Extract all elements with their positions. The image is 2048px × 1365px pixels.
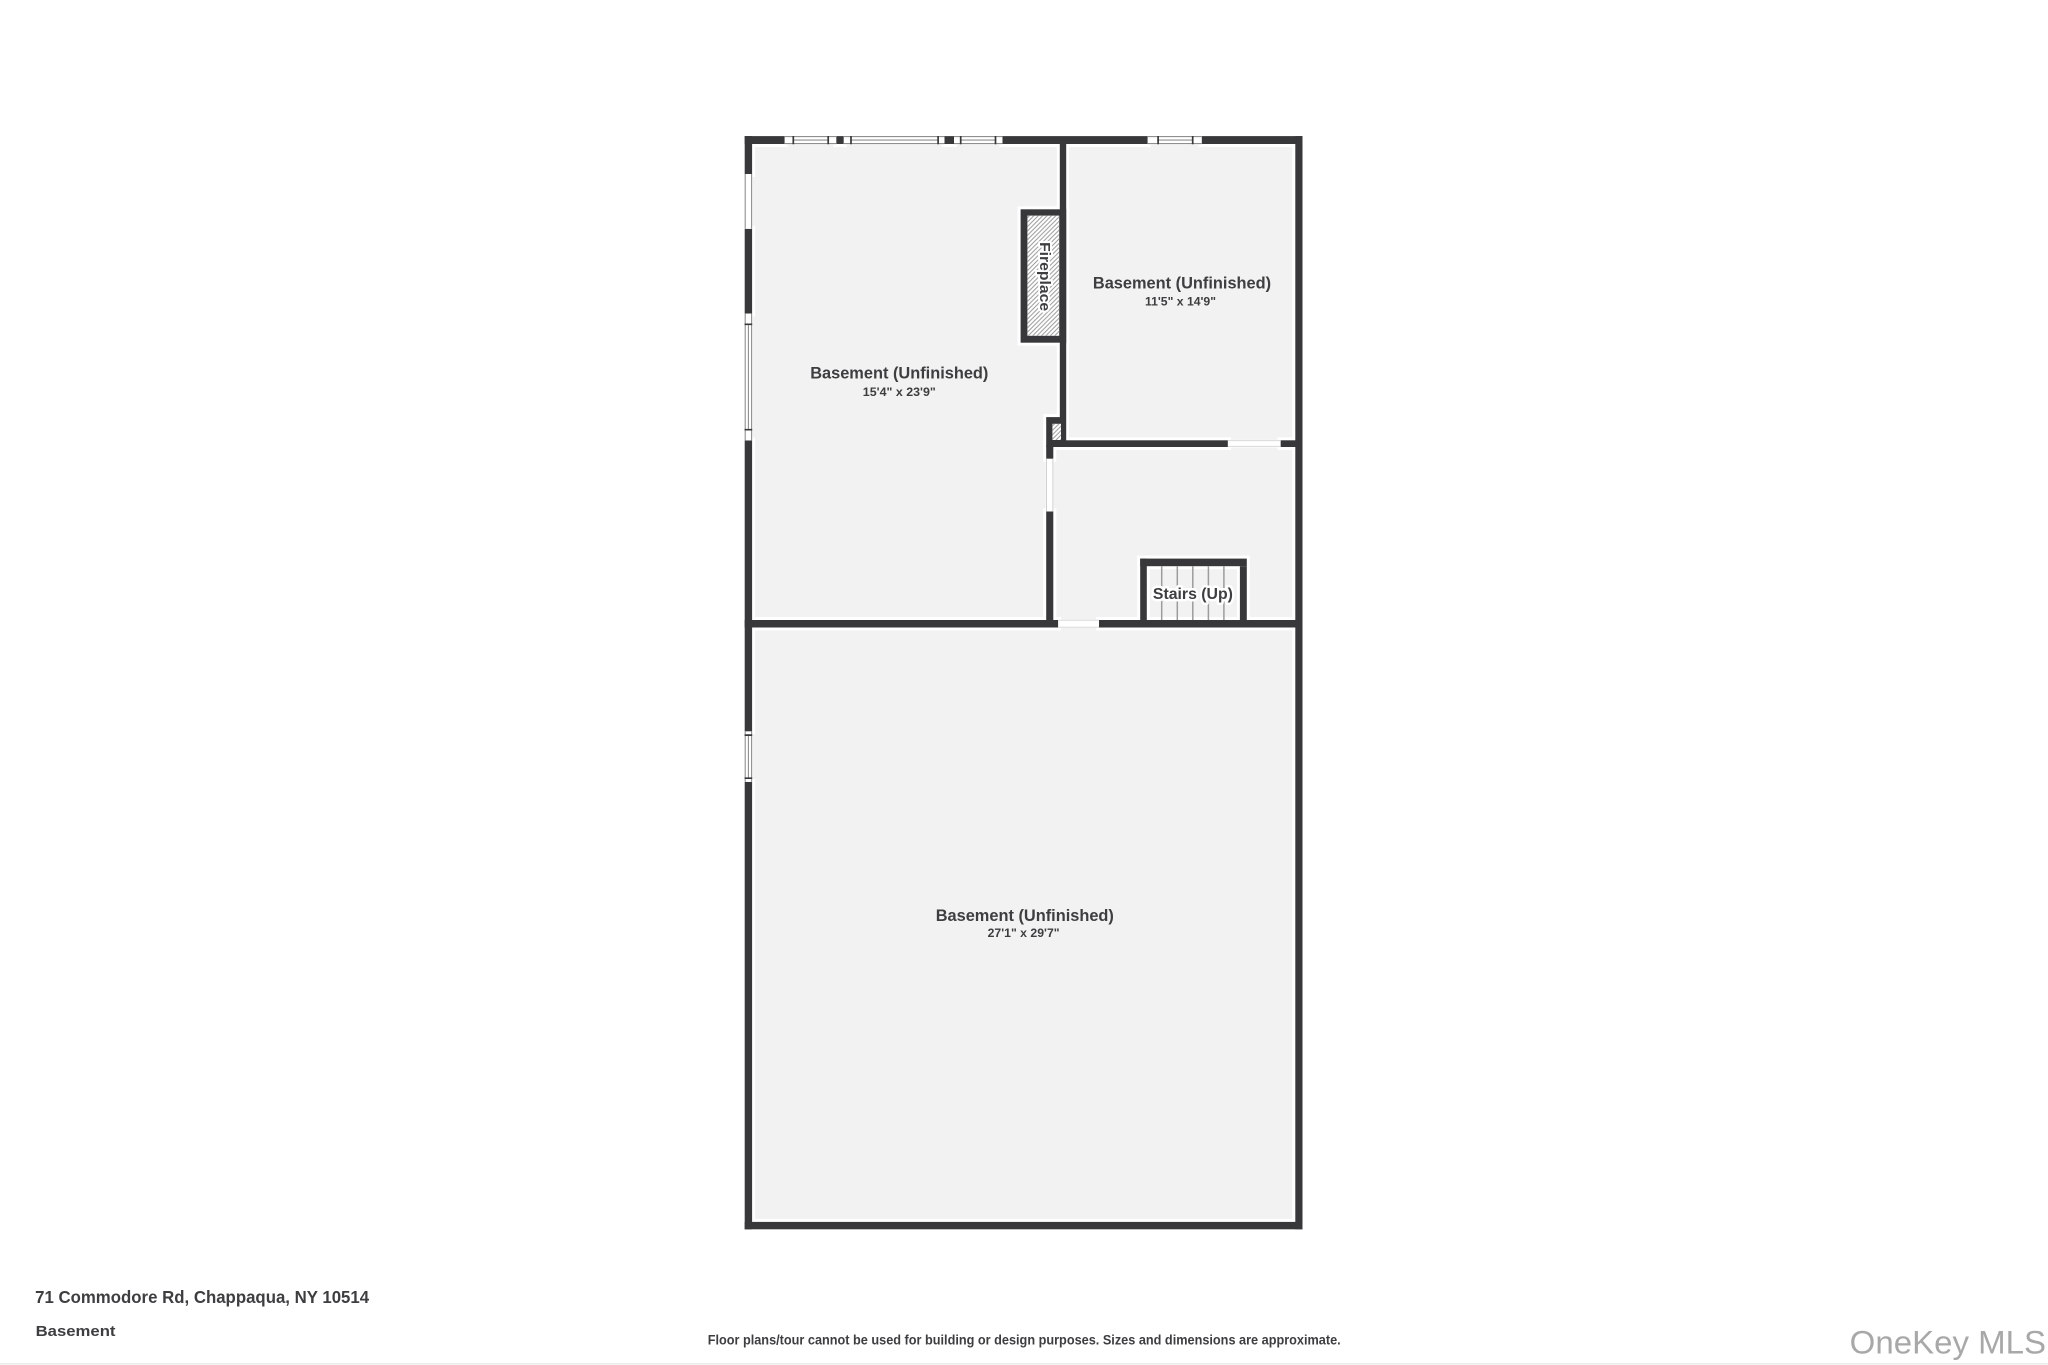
svg-text:Basement (Unfinished): Basement (Unfinished) — [810, 364, 988, 383]
svg-text:Fireplace: Fireplace — [1036, 242, 1053, 311]
svg-text:27'1" x 29'7": 27'1" x 29'7" — [988, 928, 1060, 940]
svg-text:71 Commodore Rd, Chappaqua, NY: 71 Commodore Rd, Chappaqua, NY 10514 — [35, 1287, 369, 1307]
svg-text:OneKey MLS: OneKey MLS — [1850, 1325, 2046, 1361]
svg-text:15'4" x 23'9": 15'4" x 23'9" — [863, 387, 936, 399]
svg-text:Floor plans/tour cannot be use: Floor plans/tour cannot be used for buil… — [708, 1332, 1341, 1348]
svg-text:Basement (Unfinished): Basement (Unfinished) — [1093, 273, 1271, 292]
svg-text:Basement (Unfinished): Basement (Unfinished) — [936, 906, 1114, 925]
svg-text:Basement: Basement — [36, 1324, 116, 1340]
svg-text:Stairs (Up): Stairs (Up) — [1153, 586, 1233, 603]
svg-text:11'5" x 14'9": 11'5" x 14'9" — [1145, 296, 1216, 308]
